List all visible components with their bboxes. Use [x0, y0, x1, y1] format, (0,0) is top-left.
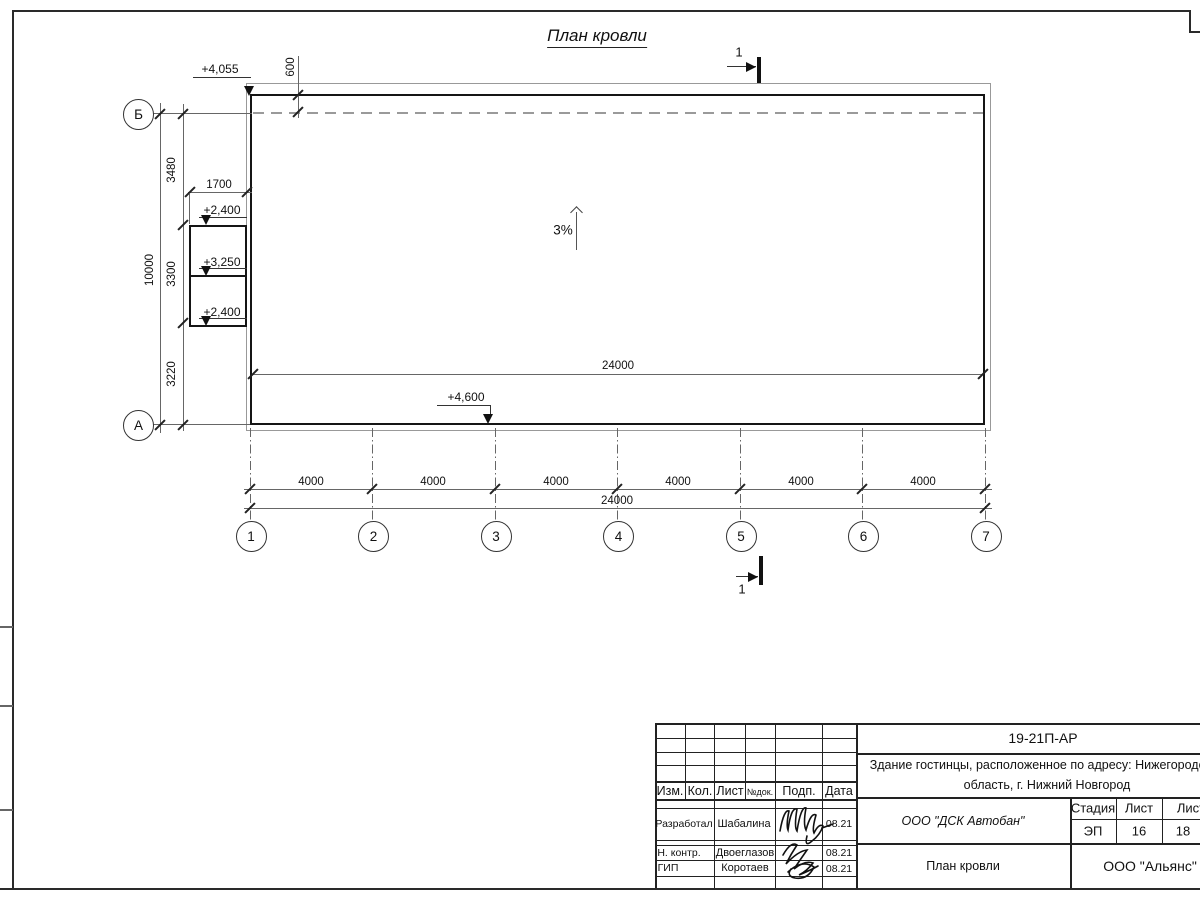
header-kol: Кол. — [688, 784, 713, 798]
slope-label: 3% — [553, 223, 573, 238]
dim-text-bay-1: 4000 — [298, 476, 324, 488]
header-data: Дата — [825, 784, 853, 798]
object-name-line1: Здание гостинцы, расположенное по адресу… — [856, 755, 1200, 775]
annex-upper-rect — [189, 225, 247, 277]
dim-text-bay-2: 4000 — [420, 476, 446, 488]
stage-value: ЭП — [1084, 824, 1103, 839]
dim-text-10000: 10000 — [144, 254, 156, 286]
elevation-leader — [437, 405, 491, 406]
titleblock-line — [655, 723, 1200, 725]
elevation-arrow — [483, 414, 493, 424]
signature-gip — [778, 839, 828, 883]
axis-circle-4: 4 — [603, 521, 634, 552]
titleblock-line — [1162, 797, 1163, 843]
sheets-total: 18 — [1176, 824, 1190, 839]
axis-circle-a: А — [123, 410, 154, 441]
titleblock-line — [685, 723, 686, 801]
dim-text-bay-5: 4000 — [788, 476, 814, 488]
sheet-number: 16 — [1132, 824, 1146, 839]
dim-text-600: 600 — [285, 57, 297, 76]
section-arrow-bottom — [748, 572, 758, 582]
role-gip: ГИП — [658, 862, 679, 874]
titleblock-line — [856, 723, 858, 888]
drawing-sheet: План кровли Б А 10000 3480 3300 3220 600… — [0, 0, 1200, 900]
section-arrow-top — [746, 62, 756, 72]
dim-line-total — [244, 508, 992, 509]
role-razrabotal: Разработал — [655, 818, 712, 830]
frame-corner-vertical — [1189, 10, 1191, 32]
dim-text-3220: 3220 — [166, 361, 178, 387]
drawing-name: План кровли — [926, 859, 1000, 873]
axis-circle-b: Б — [123, 99, 154, 130]
titleblock-line — [856, 797, 1200, 799]
frame-margin-tick — [0, 809, 13, 811]
header-ndok: №док. — [747, 787, 773, 797]
header-list: Лист — [716, 784, 743, 798]
frame-bottom — [0, 888, 1200, 890]
list-label: Лист — [1125, 801, 1153, 816]
section-mark-bar-bottom — [759, 556, 763, 585]
axis-label-7: 7 — [982, 529, 990, 544]
axis-circle-2: 2 — [358, 521, 389, 552]
elevation-arrow — [244, 86, 254, 96]
company-name: ООО "Альянс" — [1103, 858, 1197, 874]
axis-circle-3: 3 — [481, 521, 512, 552]
section-mark-bar-top — [757, 57, 761, 83]
dim-ext-1700 — [189, 194, 190, 224]
dim-text-bottom-24000: 24000 — [601, 495, 633, 507]
axis-label-a: А — [134, 418, 143, 433]
frame-top — [12, 10, 1190, 12]
axis-label-3: 3 — [492, 529, 500, 544]
frame-margin-tick — [0, 705, 13, 707]
elevation-top-left: +4,055 — [201, 62, 238, 76]
titleblock-line — [1070, 819, 1200, 820]
name-shabalina: Шабалина — [717, 818, 770, 830]
frame-corner-horizontal — [1189, 31, 1200, 33]
name-korotaev: Коротаев — [721, 862, 769, 874]
axis-circle-1: 1 — [236, 521, 267, 552]
header-podp: Подп. — [782, 784, 815, 798]
name-dvoeglazov: Двоеглазов — [716, 847, 774, 859]
annex-lower-rect — [189, 275, 247, 327]
dim-text-1700: 1700 — [206, 179, 232, 191]
axis-circle-5: 5 — [726, 521, 757, 552]
elevation-arrow — [201, 316, 211, 326]
dim-text-3480: 3480 — [166, 157, 178, 183]
dim-line-segments — [183, 104, 184, 431]
date-gip: 08.21 — [826, 863, 852, 875]
dim-text-3300: 3300 — [166, 261, 178, 287]
object-name-line2: область, г. Нижний Новгород — [856, 775, 1200, 795]
role-nkontr: Н. контр. — [657, 847, 700, 859]
axis-label-b: Б — [134, 107, 143, 122]
page-title: План кровли — [547, 26, 647, 48]
elevation-leader — [193, 77, 251, 78]
dim-text-bay-3: 4000 — [543, 476, 569, 488]
dim-line-inner-24000 — [252, 374, 983, 375]
roof-parapet-contour — [250, 94, 985, 425]
axis-label-6: 6 — [860, 529, 868, 544]
axis-a-line — [153, 424, 250, 425]
dim-line-1700 — [188, 192, 252, 193]
elevation-bottom: +4,600 — [447, 390, 484, 404]
axis-b-line — [153, 113, 252, 114]
section-label-top: 1 — [735, 45, 742, 60]
titleblock-line — [714, 723, 715, 888]
axis-label-2: 2 — [370, 529, 378, 544]
roof-hidden-line — [253, 112, 983, 114]
elevation-arrow — [201, 215, 211, 225]
axis-label-1: 1 — [247, 529, 255, 544]
axis-circle-7: 7 — [971, 521, 1002, 552]
axis-label-5: 5 — [737, 529, 745, 544]
dim-text-bay-4: 4000 — [665, 476, 691, 488]
stage-label: Стадия — [1071, 801, 1115, 816]
dim-text-bay-6: 4000 — [910, 476, 936, 488]
frame-margin-tick — [0, 626, 13, 628]
contractor-name: ООО "ДСК Автобан" — [902, 814, 1025, 828]
section-label-bottom: 1 — [738, 582, 745, 597]
frame-left — [12, 10, 14, 888]
axis-label-4: 4 — [615, 529, 623, 544]
titleblock-line — [1116, 797, 1117, 843]
titleblock-line — [655, 723, 657, 888]
doc-code: 19-21П-АР — [1008, 730, 1077, 746]
titleblock-line — [856, 843, 1200, 845]
elevation-arrow — [201, 266, 211, 276]
header-izm: Изм. — [657, 784, 684, 798]
object-name: Здание гостинцы, расположенное по адресу… — [856, 755, 1200, 795]
dim-text-inner-24000: 24000 — [602, 360, 634, 372]
listov-label: Листов — [1177, 801, 1200, 816]
axis-circle-6: 6 — [848, 521, 879, 552]
dim-line-10000 — [160, 103, 161, 433]
